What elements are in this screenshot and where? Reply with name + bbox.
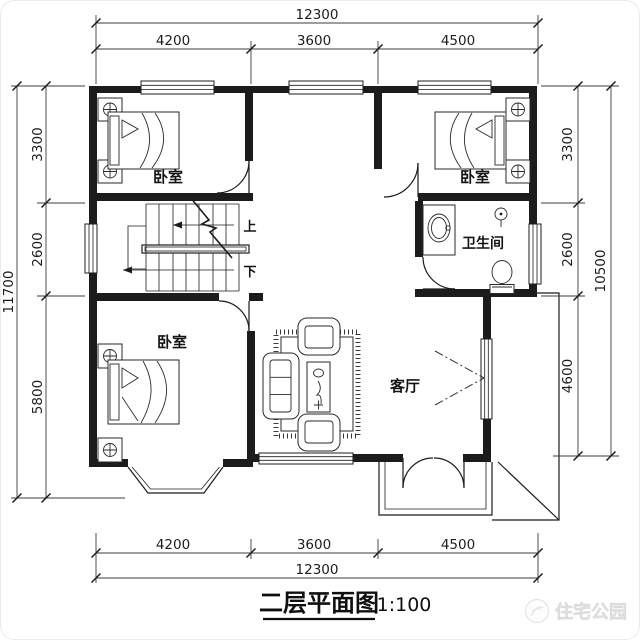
label-bathroom: 卫生间	[462, 235, 504, 251]
label-bedroom-bottom-left: 卧室	[157, 333, 187, 351]
stairs-down-arrow	[123, 267, 234, 274]
watermark-text: 住宅公园	[555, 601, 627, 622]
window-top-left-bedroom	[141, 81, 214, 94]
double-door-living-balcony	[403, 458, 464, 488]
dim-right-seg-1: 3300	[560, 127, 576, 161]
door-bottom-left-bedroom	[219, 301, 249, 331]
armchair	[298, 318, 340, 355]
dim-right-seg-2: 2600	[560, 232, 576, 266]
dimension-top: 12300 4200 3600 4500	[92, 7, 543, 84]
stairs-up-label: 上	[243, 219, 256, 234]
dim-bottom-total: 12300	[296, 562, 339, 578]
dim-left-total: 11700	[1, 271, 17, 314]
stairs-handrail	[142, 245, 249, 253]
drawing-title: 二层平面图	[259, 590, 379, 617]
window-stairwell-left	[85, 224, 97, 273]
dimension-bottom: 4200 3600 4500 12300	[92, 533, 543, 583]
window-living-bottom	[259, 453, 353, 464]
stairs-landing-edge	[128, 226, 146, 269]
armchair	[298, 414, 340, 451]
drawing-title-block: 二层平面图 1:100	[259, 590, 431, 619]
dim-left-seg-2: 2600	[30, 232, 46, 266]
window-top-right-bedroom	[418, 81, 491, 94]
dim-top-seg-1: 4200	[156, 33, 190, 49]
sofa-set	[263, 318, 358, 451]
dim-left-seg-1: 3300	[30, 127, 46, 161]
window-hall-top	[289, 81, 363, 94]
dim-top-seg-3: 4500	[441, 33, 475, 49]
toilet	[490, 261, 514, 294]
bed-bottom-left-bedroom	[98, 344, 179, 462]
shower-head-icon	[495, 208, 507, 227]
dim-bottom-seg-3: 4500	[441, 537, 475, 553]
terrace	[492, 293, 559, 520]
dim-bottom-seg-2: 3600	[297, 537, 331, 553]
sofa	[263, 353, 299, 419]
label-bedroom-top-left: 卧室	[153, 168, 183, 186]
dimension-right: 3300 2600 4600 10500	[541, 82, 619, 461]
stairs: 上 下	[123, 197, 257, 291]
stairs-down-label: 下	[243, 264, 256, 279]
balcony	[379, 462, 492, 515]
dim-top-total: 12300	[296, 7, 339, 23]
door-top-right-bedroom	[384, 163, 418, 197]
terrace-diagonal	[498, 462, 559, 520]
watermark: 住宅公园	[526, 600, 628, 623]
label-living-room: 客厅	[389, 377, 420, 395]
dim-right-seg-3: 4600	[560, 359, 576, 393]
bay-window	[128, 467, 223, 493]
dim-right-total: 10500	[593, 250, 609, 293]
door-bathroom	[423, 257, 455, 289]
label-bedroom-top-right: 卧室	[460, 168, 490, 186]
floor-plan-image: 上 下	[0, 0, 640, 640]
window-swing-indicator	[435, 351, 484, 405]
floor-plan: 上 下	[1, 1, 640, 640]
window-bathroom-right	[529, 224, 541, 284]
drawing-scale: 1:100	[377, 594, 432, 616]
dim-left-seg-3: 5800	[30, 380, 46, 414]
dim-bottom-seg-1: 4200	[156, 537, 190, 553]
door-top-left-bedroom	[217, 161, 249, 193]
dim-top-seg-2: 3600	[297, 33, 331, 49]
